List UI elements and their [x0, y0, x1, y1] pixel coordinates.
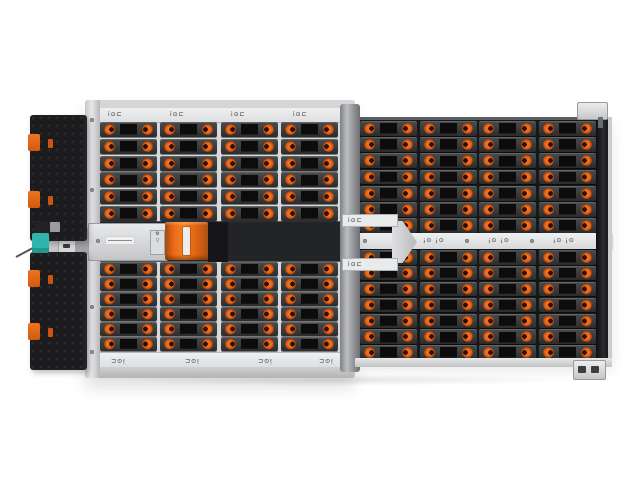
drive-slot [479, 170, 536, 185]
drive-slot [100, 172, 157, 187]
drive-slot [221, 156, 278, 171]
drive-slot [160, 156, 217, 171]
drive-slot [360, 137, 417, 152]
drive-slot [420, 137, 477, 152]
latch-rail-bottom: i⊙⊏i⊙⊏i⊙⊏i⊙⊏ [100, 352, 340, 367]
drive-slot [221, 322, 278, 336]
drive-slot [221, 172, 278, 187]
latch-rail-glyph: i⊙⊏ [293, 111, 308, 119]
drive-slot [100, 156, 157, 171]
drive-slot [420, 218, 477, 233]
drive-slot [479, 250, 536, 265]
drive-slot [221, 292, 278, 306]
drive-slot [479, 202, 536, 217]
drive-slot [100, 277, 157, 291]
right-outer-rail [608, 117, 612, 362]
drive-slot [221, 277, 278, 291]
bezel-clip-orange [28, 323, 40, 340]
drive-slot [360, 329, 417, 344]
chassis-right-edge [596, 117, 608, 362]
bezel-mark-orange [48, 328, 53, 337]
drive-slot [479, 121, 536, 136]
drive-slot [281, 307, 338, 321]
drive-slot [100, 262, 157, 276]
fan-lock-icons: ¡⊙ ¡⊙ [423, 237, 445, 245]
drive-slot [160, 206, 217, 221]
drive-slot [160, 172, 217, 187]
screw-icon [363, 239, 367, 243]
drive-slot [420, 186, 477, 201]
left-bottom-drive-grid [100, 262, 338, 351]
drive-slot [539, 170, 596, 185]
psu-handle-label [183, 227, 190, 255]
drive-slot [160, 307, 217, 321]
latch-rail-glyph: i⊙⊏ [318, 356, 333, 364]
drive-slot [160, 139, 217, 154]
drive-slot [281, 206, 338, 221]
psu-warning-icons: ⚙▽ [150, 230, 165, 255]
mid-bay-gap [208, 222, 228, 262]
drive-slot [100, 206, 157, 221]
latch-rail-glyph: i⊙⊏ [257, 356, 272, 364]
drive-slot [221, 307, 278, 321]
drive-slot [281, 122, 338, 137]
screw-icon [530, 239, 534, 243]
drive-slot [479, 137, 536, 152]
drive-slot [160, 337, 217, 351]
drive-slot [479, 314, 536, 329]
screw-icon [90, 118, 94, 122]
connector [50, 222, 60, 232]
drive-slot [479, 266, 536, 281]
drive-slot [360, 298, 417, 313]
drive-slot [100, 322, 157, 336]
drive-slot [160, 277, 217, 291]
drive-slot [539, 218, 596, 233]
rail-bracket-bottom-right [573, 360, 606, 380]
latch-rail-glyph: i⊙⊏ [231, 111, 246, 119]
drive-slot [539, 329, 596, 344]
screw-icon [465, 239, 469, 243]
drive-slot [360, 170, 417, 185]
drive-slot [281, 277, 338, 291]
drive-slot [420, 298, 477, 313]
bezel-mark-orange [48, 196, 53, 205]
drive-slot [420, 266, 477, 281]
drive-slot [281, 156, 338, 171]
latch-rail-glyph: i⊙⊏ [108, 111, 123, 119]
drive-slot [420, 250, 477, 265]
drive-slot [539, 202, 596, 217]
left-top-drive-grid [100, 122, 338, 221]
drive-slot [420, 314, 477, 329]
latch-rail-glyph: i⊙⊏ [184, 356, 199, 364]
drive-slot [420, 121, 477, 136]
drive-slot [479, 282, 536, 297]
drive-slot [281, 172, 338, 187]
screw-icon [96, 239, 100, 243]
drive-slot [281, 292, 338, 306]
drive-slot [539, 298, 596, 313]
center-divider [340, 104, 360, 372]
drive-slot [539, 153, 596, 168]
drive-slot [281, 189, 338, 204]
latch-rail-top: i⊙⊏i⊙⊏i⊙⊏i⊙⊏ [100, 108, 340, 123]
bezel-clip-orange [28, 134, 40, 151]
drive-slot [221, 189, 278, 204]
drive-slot [539, 250, 596, 265]
drive-slot [479, 153, 536, 168]
drive-slot [160, 292, 217, 306]
screw-icon [90, 188, 94, 192]
drive-slot [281, 262, 338, 276]
left-bottom-frame [85, 366, 355, 378]
bezel-mark-orange [48, 139, 53, 148]
product-photo-storage-enclosure: ¡⊙ ¡⊙¡⊙ ¡⊙¡⊙ ¡⊙ i⊙⊏i⊙⊏i⊙⊏i⊙⊏ i⊙⊏i⊙⊏i⊙⊏i⊙… [0, 0, 640, 480]
drive-slot [360, 121, 417, 136]
drive-slot [100, 292, 157, 306]
drive-slot [420, 282, 477, 297]
drive-slot [221, 139, 278, 154]
drive-slot [281, 139, 338, 154]
drive-slot [100, 307, 157, 321]
drive-slot [539, 282, 596, 297]
drive-slot [479, 186, 536, 201]
drive-slot [479, 329, 536, 344]
drive-slot [539, 314, 596, 329]
drive-slot [221, 262, 278, 276]
drive-slot [281, 337, 338, 351]
bezel-clip-orange [28, 191, 40, 208]
fan-lock-icons: ¡⊙ ¡⊙ [553, 237, 575, 245]
bracket-pin [598, 117, 603, 128]
latch-rail-glyph: i⊙⊏ [110, 356, 125, 364]
psu-plug-slot [63, 244, 70, 248]
drive-slot [221, 122, 278, 137]
screw-icon [90, 305, 94, 309]
drive-slot [420, 329, 477, 344]
drive-slot [100, 337, 157, 351]
drive-slot [539, 121, 596, 136]
drive-slot [100, 122, 157, 137]
drive-slot [100, 139, 157, 154]
bracket-hole [591, 366, 599, 373]
drive-slot [479, 218, 536, 233]
fan-lock-icons: ¡⊙ ¡⊙ [488, 237, 510, 245]
drive-slot [100, 189, 157, 204]
drive-slot [221, 337, 278, 351]
drive-slot [420, 153, 477, 168]
drive-slot [281, 322, 338, 336]
drive-slot [160, 189, 217, 204]
bezel-mark-orange [48, 275, 53, 284]
screw-icon [90, 350, 94, 354]
bezel-panel-bottom [30, 252, 87, 370]
bezel-clip-orange [28, 270, 40, 287]
drive-slot [539, 137, 596, 152]
rail-bracket-top-right [577, 102, 608, 120]
drive-slot [221, 206, 278, 221]
drive-slot [360, 314, 417, 329]
drive-slot [420, 170, 477, 185]
drive-slot [539, 186, 596, 201]
latch-chip-upper: i⊙⊏ [343, 215, 397, 226]
psu-handle-orange [165, 222, 208, 260]
drive-slot [160, 322, 217, 336]
bracket-hole [578, 366, 586, 373]
drive-slot [360, 153, 417, 168]
drive-slot [160, 122, 217, 137]
latch-rail-glyph: i⊙⊏ [170, 111, 185, 119]
psu-label-chip [105, 236, 135, 245]
release-tab-teal [32, 233, 49, 253]
drive-slot [360, 282, 417, 297]
latch-chip-lower: i⊙⊏ [343, 259, 397, 270]
drive-slot [160, 262, 217, 276]
drive-slot [479, 298, 536, 313]
drive-slot [539, 266, 596, 281]
drive-slot [360, 186, 417, 201]
drive-slot [420, 202, 477, 217]
